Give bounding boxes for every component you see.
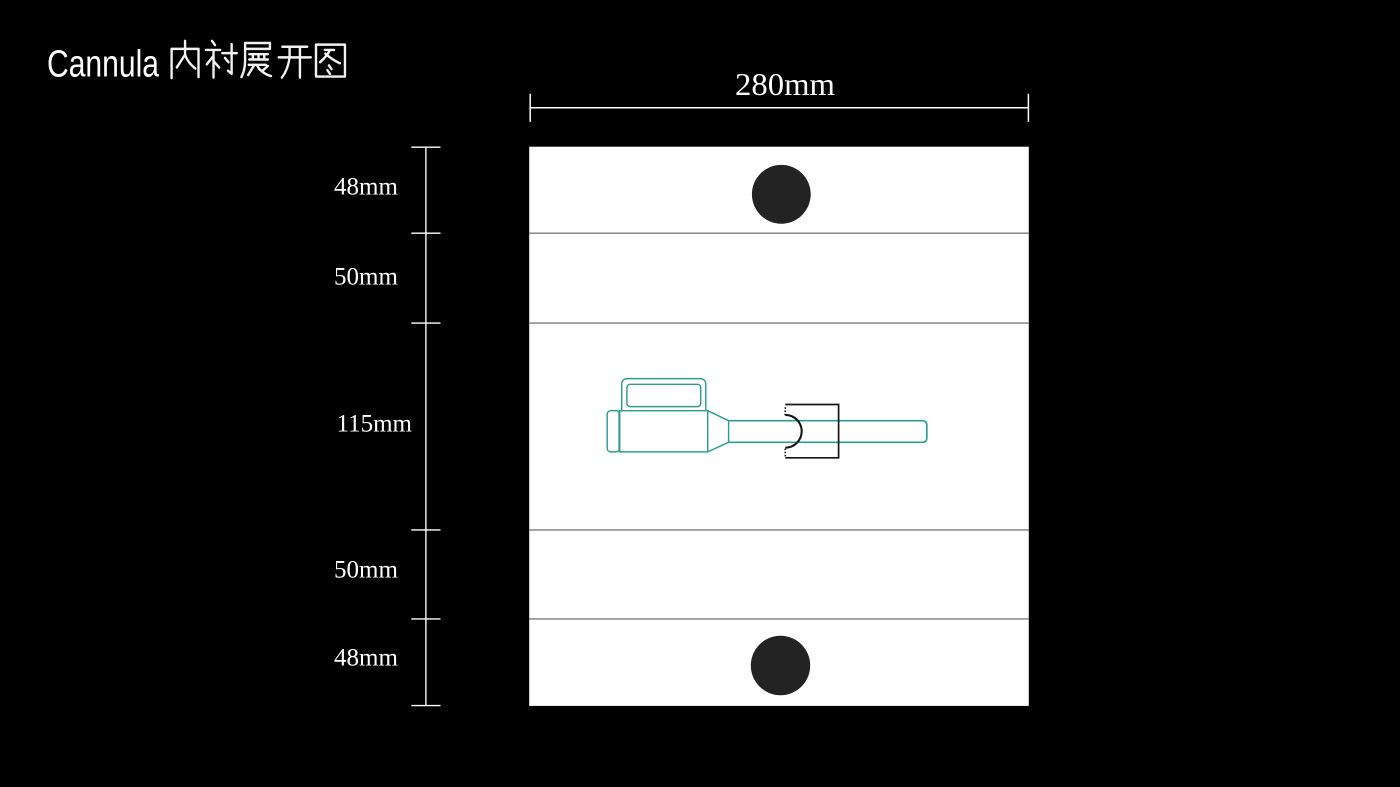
- svg-text:280mm: 280mm: [735, 66, 835, 102]
- svg-text:48mm: 48mm: [334, 644, 398, 671]
- svg-text:50mm: 50mm: [334, 557, 398, 584]
- svg-text:50mm: 50mm: [334, 263, 398, 290]
- svg-text:48mm: 48mm: [334, 174, 398, 201]
- svg-text:115mm: 115mm: [337, 411, 413, 438]
- svg-text:Cannula: Cannula: [47, 44, 160, 86]
